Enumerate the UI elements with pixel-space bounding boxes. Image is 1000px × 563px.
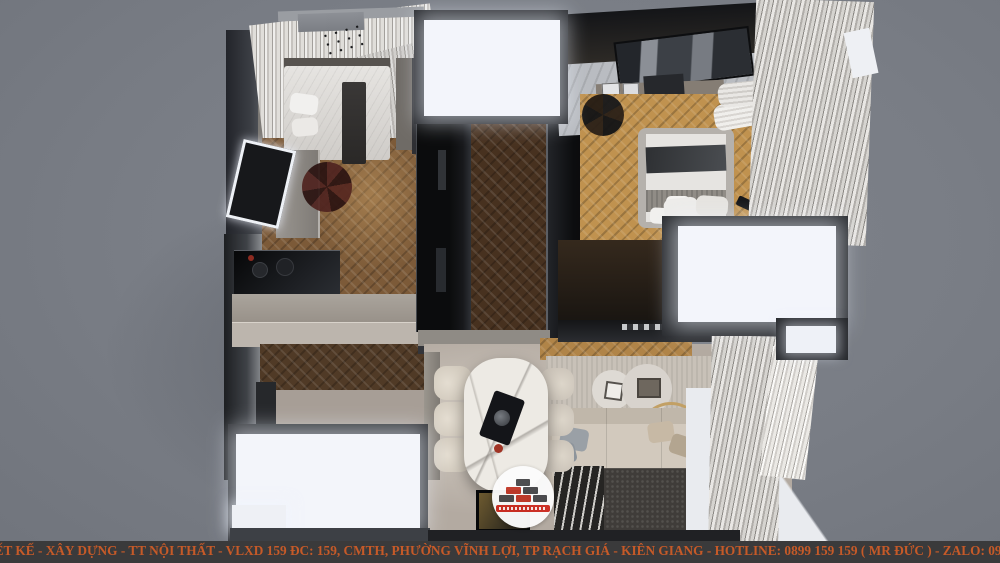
table-red-item — [494, 444, 503, 453]
bedroom1-dark-throw — [342, 82, 366, 164]
stove-knob-2 — [276, 258, 294, 276]
floor-pillow-2 — [695, 195, 728, 217]
brick-icon — [523, 487, 538, 494]
bottom-dark-strip-left — [230, 528, 430, 541]
brick-icon — [499, 495, 514, 502]
entry-wood-partition — [260, 344, 428, 394]
ceiling-fan-1 — [302, 162, 352, 212]
brick-icon — [516, 479, 530, 486]
tray-plate — [494, 410, 510, 426]
brick-icon — [516, 495, 531, 502]
light-panel-top — [424, 20, 560, 116]
stove-red-dot — [248, 255, 254, 261]
light-panel-bottom-small — [232, 505, 286, 528]
light-panel-right — [678, 226, 836, 322]
advert-banner-text: CTY THIẾT KẾ - XÂY DỰNG - TT NỘI THẤT - … — [0, 544, 1000, 560]
bedroom2-bench-dark — [558, 240, 664, 322]
ceiling-fan-2 — [582, 94, 624, 136]
brick-icon — [533, 495, 547, 502]
advert-banner: CTY THIẾT KẾ - XÂY DỰNG - TT NỘI THẤT - … — [0, 541, 1000, 563]
cabinet-reflection-1 — [438, 150, 446, 190]
bedroom2-dark-blanket — [646, 145, 727, 174]
render-canvas: CTY THIẾT KẾ - XÂY DỰNG - TT NỘI THẤT - … — [0, 0, 1000, 563]
striped-floor-vent — [554, 466, 604, 532]
bedroom1-pillow-2 — [291, 117, 319, 138]
kitchen-floor — [468, 116, 550, 348]
logo-ribbon-text-dashes — [499, 507, 547, 510]
light-panel-small — [786, 326, 836, 353]
company-logo-watermark — [492, 466, 554, 528]
stove-knob-1 — [252, 262, 268, 278]
brick-icon — [506, 487, 521, 494]
wall-plate-2-picture — [637, 378, 661, 398]
kitchen-cabinets-left — [416, 116, 471, 332]
bedroom1-pillow-1 — [289, 92, 320, 116]
cabinet-reflection-2 — [436, 248, 446, 292]
bottom-dark-strip-right — [428, 530, 740, 541]
